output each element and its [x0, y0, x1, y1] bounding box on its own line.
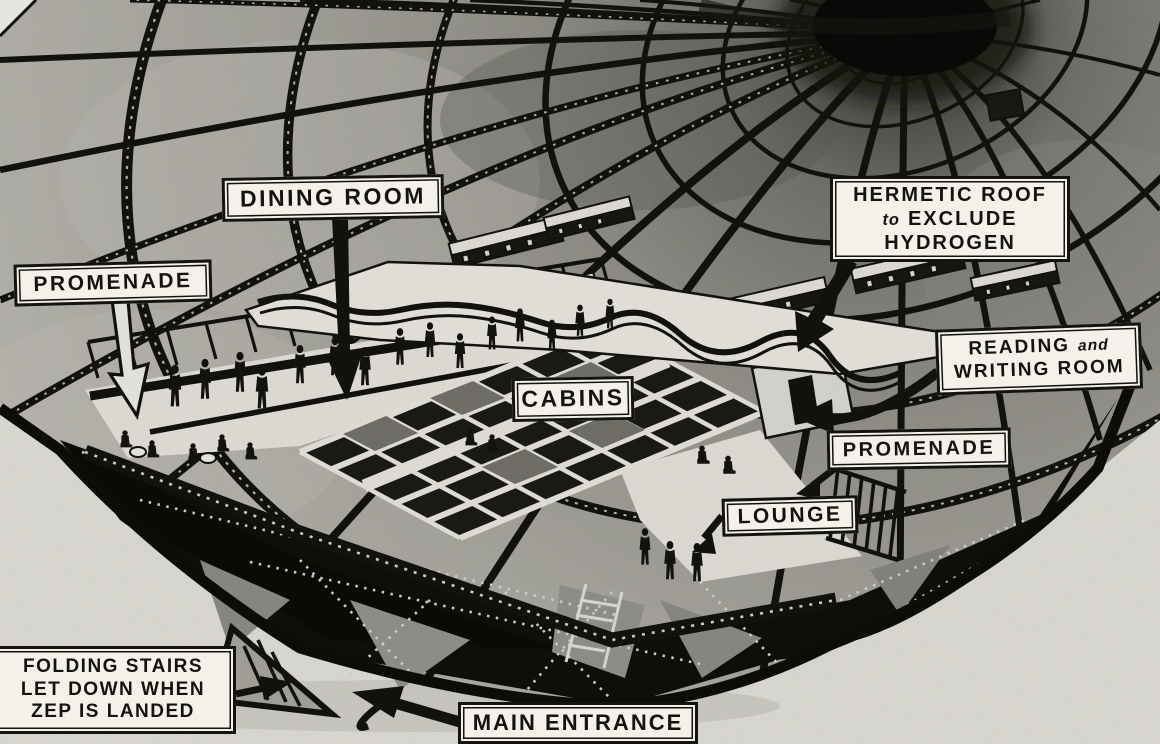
folding-line-1: FOLDING STAIRS	[23, 656, 203, 679]
label-reading-writing-room: READING and WRITING ROOM	[935, 322, 1143, 395]
label-promenade-right: PROMENADE	[827, 427, 1012, 470]
folding-line-2: LET DOWN WHEN	[21, 679, 205, 702]
label-hermetic-roof: HERMETIC ROOF to EXCLUDE HYDROGEN	[830, 176, 1070, 262]
label-folding-stairs: FOLDING STAIRS LET DOWN WHEN ZEP IS LAND…	[0, 646, 236, 734]
reading-line-2: WRITING ROOM	[954, 356, 1125, 385]
label-promenade-left-text: PROMENADE	[33, 268, 193, 297]
folding-line-3: ZEP IS LANDED	[31, 701, 195, 724]
hermetic-word-to: to	[882, 211, 899, 231]
hermetic-line-1: HERMETIC ROOF	[853, 183, 1047, 207]
reading-word-and: and	[1078, 337, 1109, 357]
zeppelin-cutaway-diagram: PROMENADE DINING ROOM HERMETIC ROOF to E…	[0, 0, 1160, 744]
label-main-entrance: MAIN ENTRANCE	[458, 702, 698, 744]
hermetic-word-exclude: EXCLUDE	[908, 207, 1018, 231]
label-cabins-text: CABINS	[521, 384, 625, 413]
label-promenade-left: PROMENADE	[13, 259, 212, 306]
label-promenade-right-text: PROMENADE	[843, 436, 996, 463]
label-dining-room: DINING ROOM	[222, 174, 445, 222]
label-cabins: CABINS	[512, 376, 635, 422]
label-main-entrance-text: MAIN ENTRANCE	[473, 710, 684, 736]
label-lounge: LOUNGE	[722, 495, 859, 537]
hermetic-line-2: to EXCLUDE	[882, 207, 1017, 231]
label-dining-room-text: DINING ROOM	[240, 183, 426, 214]
hermetic-line-3: HYDROGEN	[884, 231, 1016, 255]
label-lounge-text: LOUNGE	[737, 502, 842, 530]
